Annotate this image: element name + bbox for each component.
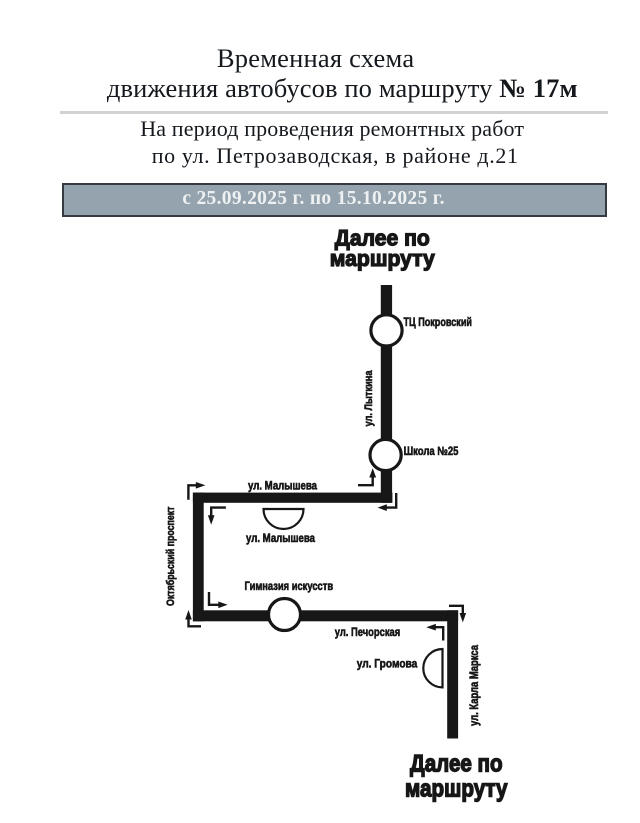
svg-text:ТЦ Покровский: ТЦ Покровский	[404, 315, 473, 329]
svg-text:ул. Лыткина: ул. Лыткина	[363, 370, 375, 427]
svg-text:маршруту: маршруту	[405, 776, 508, 803]
svg-text:Далее по: Далее по	[410, 751, 503, 778]
svg-text:ул. Карла Маркса: ул. Карла Маркса	[467, 645, 481, 726]
svg-text:Школа №25: Школа №25	[404, 444, 459, 458]
svg-text:ул. Громова: ул. Громова	[357, 657, 418, 671]
svg-text:Октябрьский проспект: Октябрьский проспект	[165, 506, 177, 606]
svg-text:Гимназия искусств: Гимназия искусств	[245, 579, 334, 593]
svg-text:ул. Малышева: ул. Малышева	[246, 531, 315, 545]
svg-text:маршруту: маршруту	[330, 246, 435, 271]
svg-text:ул. Малышева: ул. Малышева	[248, 479, 317, 493]
svg-text:ул. Печорская: ул. Печорская	[335, 625, 401, 639]
